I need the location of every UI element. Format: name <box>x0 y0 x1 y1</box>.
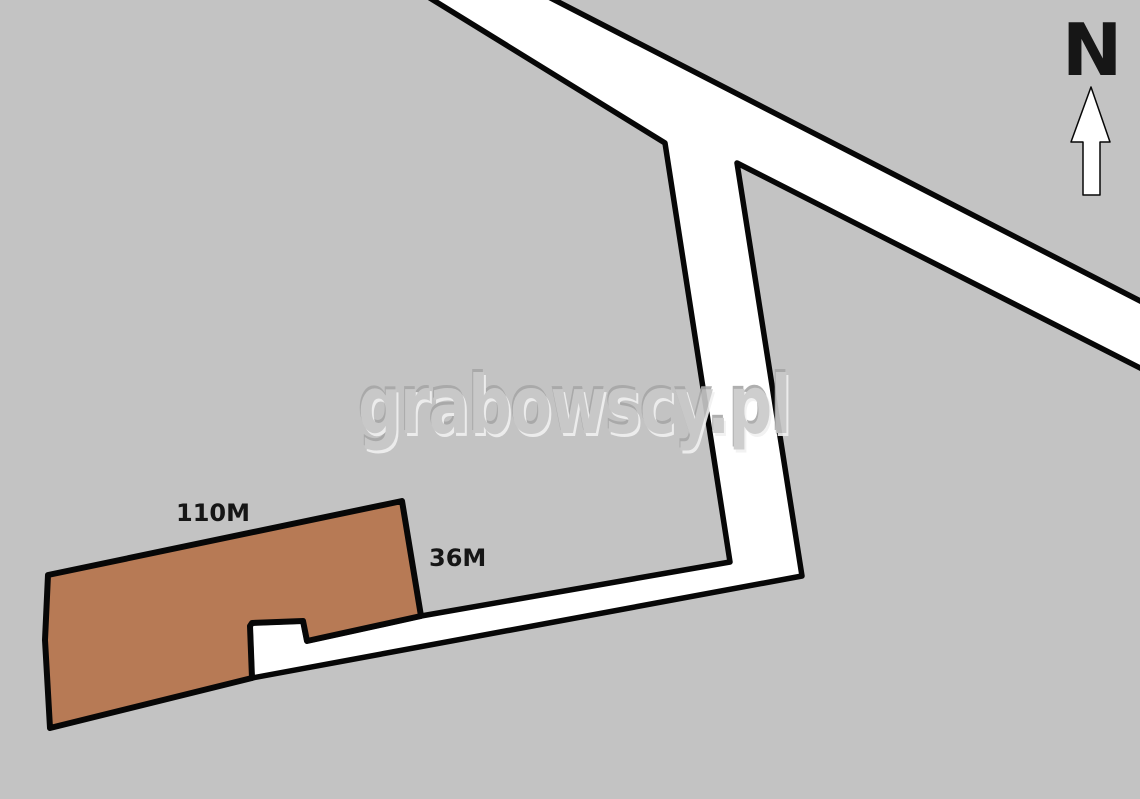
watermark-text: grabowscy.pl <box>358 359 790 452</box>
parcel-top-dimension-label: 110M <box>176 499 250 527</box>
parcel-right-dimension-label: 36M <box>429 544 486 572</box>
map-canvas: 110M 36M grabowscy.pl grabowscy.pl grabo… <box>0 0 1140 799</box>
north-label: N <box>1062 8 1122 92</box>
plot-map: 110M 36M grabowscy.pl grabowscy.pl grabo… <box>0 0 1140 799</box>
watermark: grabowscy.pl grabowscy.pl grabowscy.pl <box>357 356 792 455</box>
